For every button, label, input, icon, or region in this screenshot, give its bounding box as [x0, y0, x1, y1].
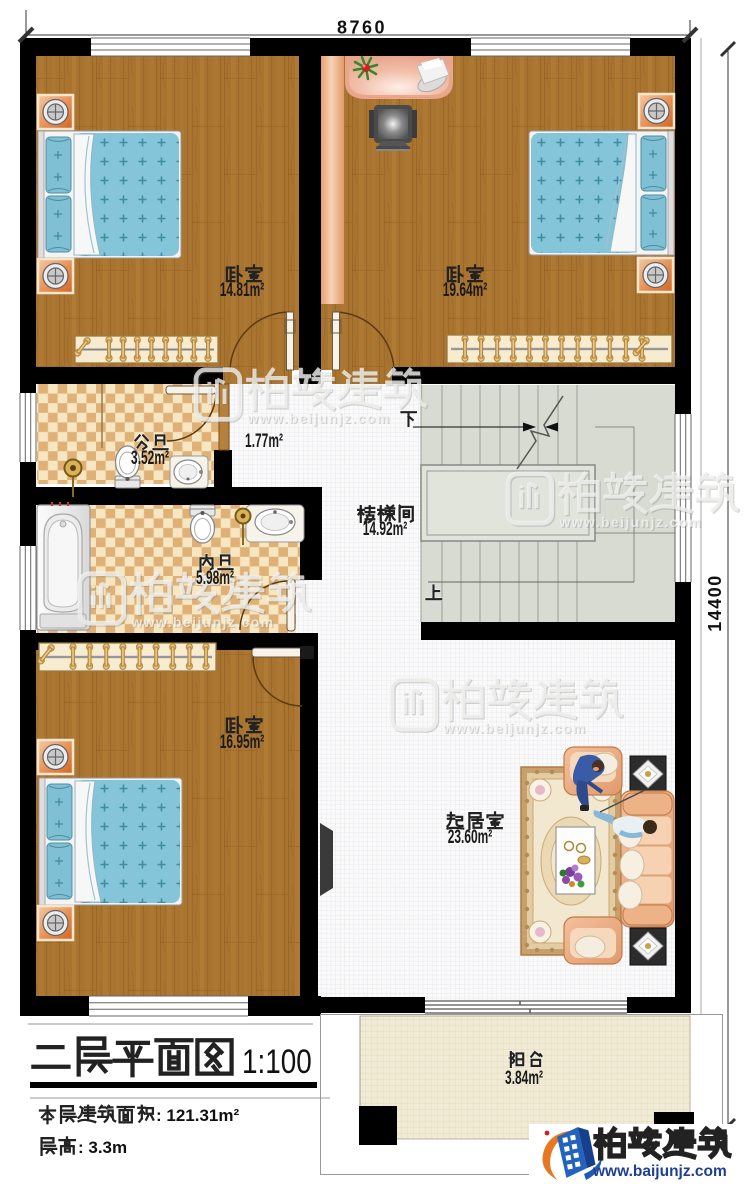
svg-text:3.84m²: 3.84m²	[505, 1068, 543, 1088]
svg-text:www.beijunjz.com: www.beijunjz.com	[130, 614, 274, 630]
svg-text:www.baijunjz.com: www.baijunjz.com	[592, 1163, 727, 1180]
svg-text:8760: 8760	[337, 18, 387, 38]
svg-text:www.beijunjz.com: www.beijunjz.com	[246, 410, 390, 426]
svg-text:1:100: 1:100	[242, 1042, 312, 1080]
svg-text:5.98m²: 5.98m²	[196, 568, 234, 588]
svg-text:www.beijunjz.com: www.beijunjz.com	[558, 514, 702, 530]
svg-text:www.beijunjz.com: www.beijunjz.com	[442, 720, 586, 736]
svg-text:14.81m²: 14.81m²	[220, 280, 265, 300]
svg-text:14.92m²: 14.92m²	[363, 519, 408, 539]
svg-text:19.64m²: 19.64m²	[443, 280, 488, 300]
svg-text:: 3.3m: : 3.3m	[78, 1138, 127, 1157]
svg-text:3.52m²: 3.52m²	[131, 448, 169, 468]
svg-text:: 121.31m²: : 121.31m²	[156, 1106, 239, 1125]
svg-text:16.95m²: 16.95m²	[220, 732, 265, 752]
svg-text:23.60m²: 23.60m²	[448, 827, 493, 847]
svg-text:14400: 14400	[705, 574, 725, 632]
svg-text:1.77m²: 1.77m²	[245, 431, 283, 451]
